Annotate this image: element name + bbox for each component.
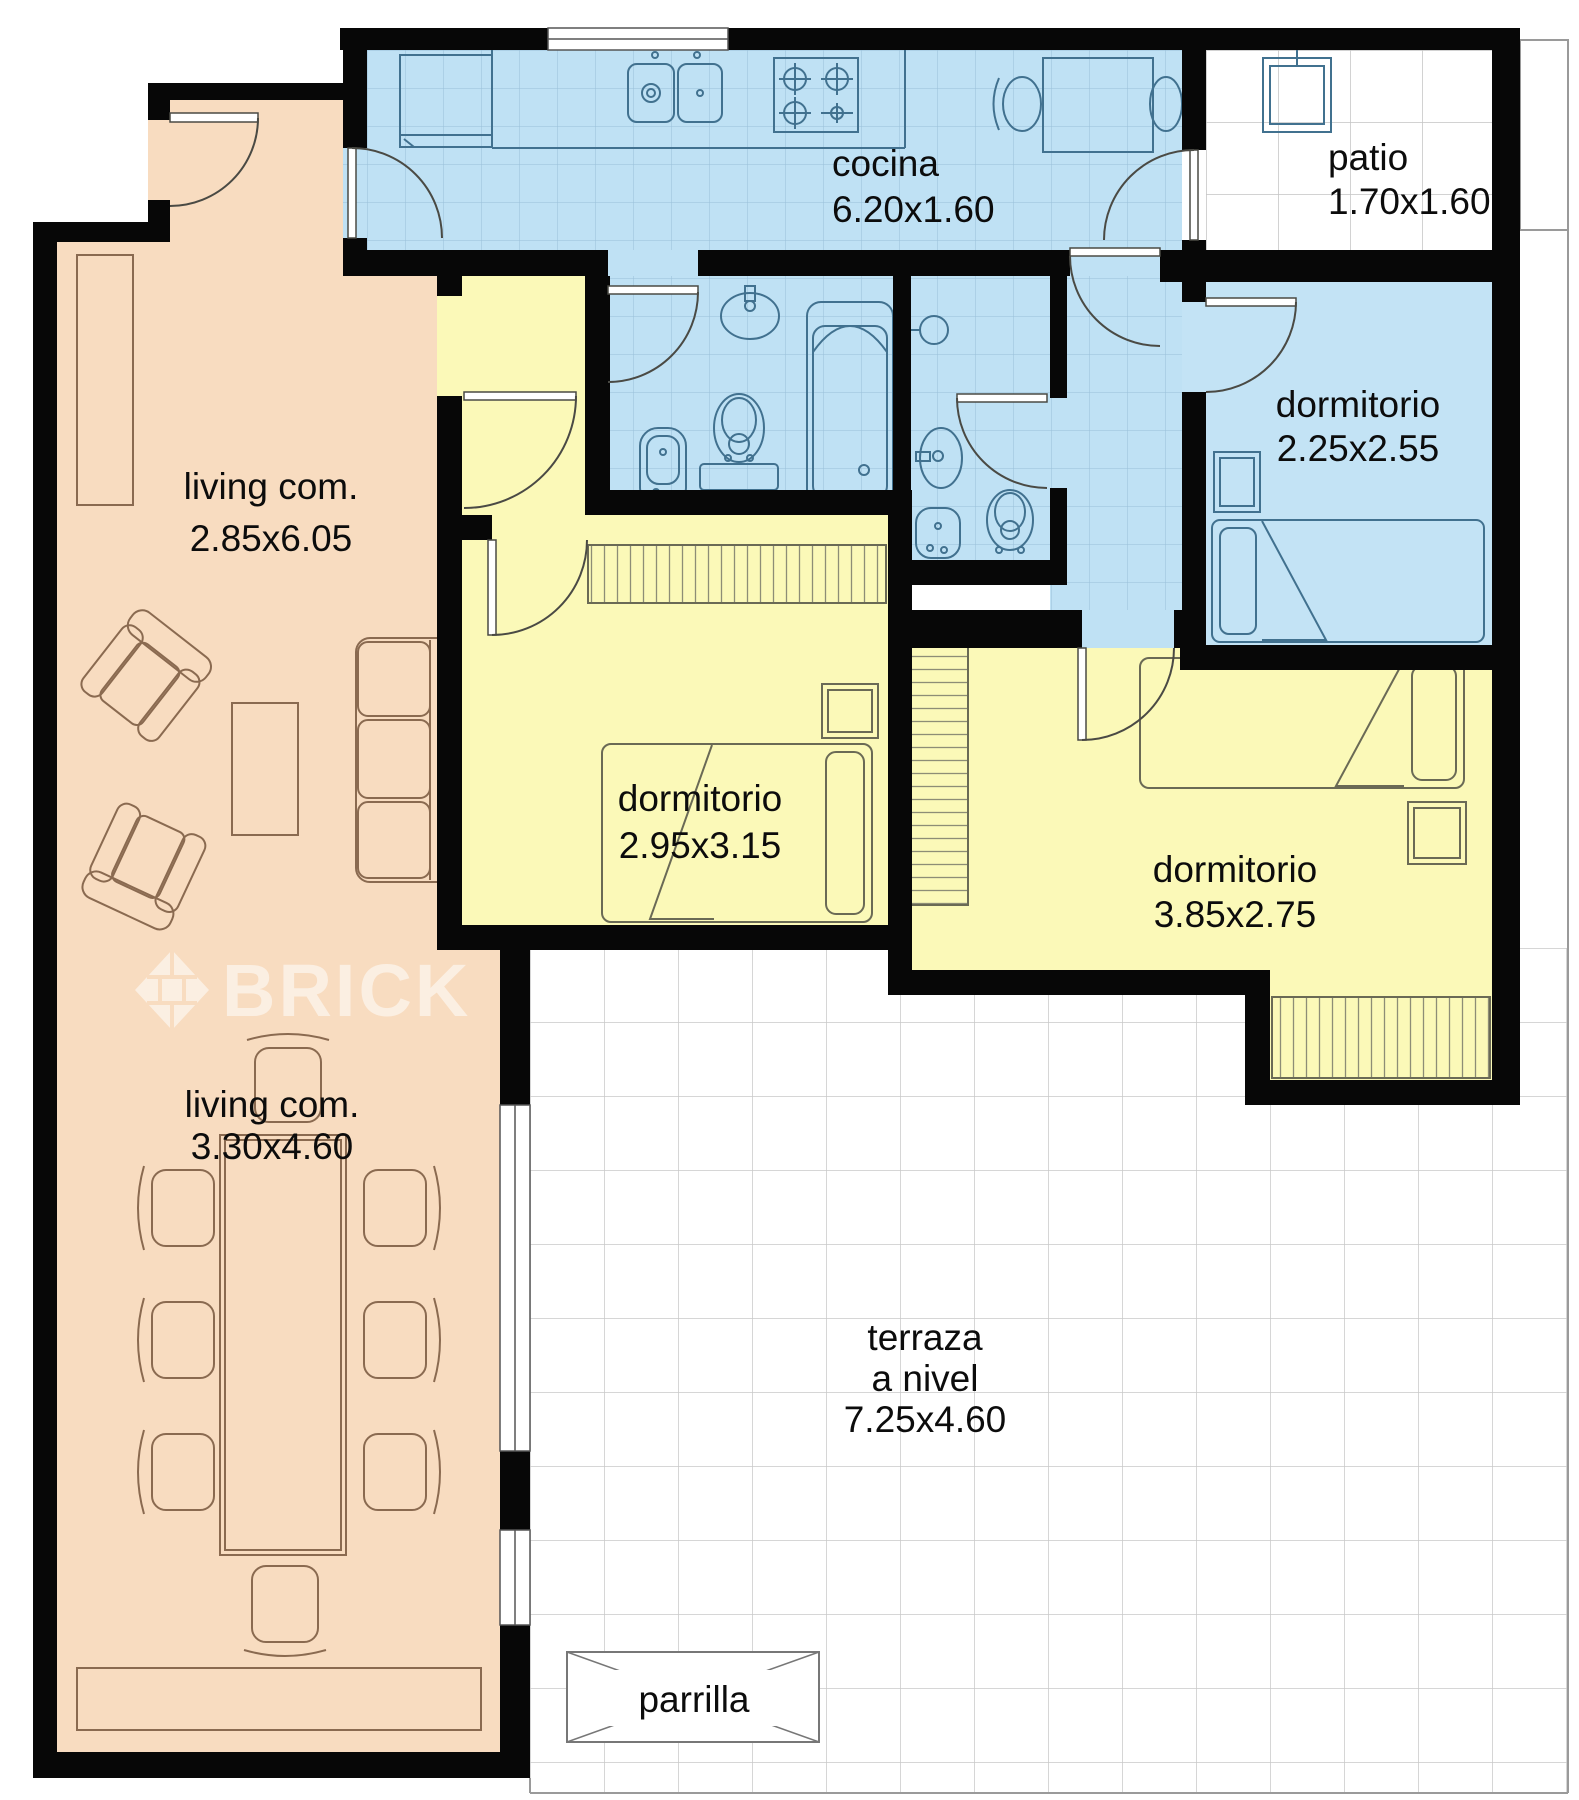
terrace-window	[500, 1105, 530, 1451]
label-living-lower-dims: 3.30x4.60	[191, 1126, 354, 1167]
room-living	[57, 100, 500, 1752]
air-shaft	[1520, 40, 1568, 230]
label-terraza-dims: 7.25x4.60	[844, 1399, 1007, 1440]
label-dorm-small: dormitorio	[1276, 384, 1441, 425]
wardrobe	[910, 612, 968, 905]
label-living-lower: living com.	[185, 1084, 360, 1125]
label-dorm-right: dormitorio	[1153, 849, 1318, 890]
label-terraza-1: terraza	[867, 1317, 983, 1358]
wardrobe	[588, 545, 886, 603]
label-cocina-dims: 6.20x1.60	[832, 189, 995, 230]
label-dorm-center-dims: 2.95x3.15	[619, 825, 782, 866]
room-cocina	[343, 50, 1182, 276]
label-dorm-center: dormitorio	[618, 778, 783, 819]
parrilla-box: parrilla	[567, 1652, 819, 1742]
label-living-upper: living com.	[184, 466, 359, 507]
corridor	[1050, 276, 1182, 648]
terrace-window	[500, 1530, 530, 1625]
label-cocina: cocina	[832, 143, 939, 184]
wardrobe	[1272, 997, 1490, 1078]
parrilla-label: parrilla	[638, 1679, 749, 1720]
floor-plan: parrilla BRICK cocina 6.20x1.60 patio 1.…	[0, 0, 1579, 1800]
label-dorm-right-dims: 3.85x2.75	[1154, 894, 1317, 935]
watermark-text: BRICK	[222, 949, 471, 1032]
label-patio: patio	[1328, 137, 1408, 178]
bathroom-second	[907, 276, 1050, 560]
label-living-upper-dims: 2.85x6.05	[190, 518, 353, 559]
floor-plan-canvas: parrilla BRICK cocina 6.20x1.60 patio 1.…	[0, 0, 1579, 1800]
kitchen-window	[548, 28, 728, 50]
label-terraza-2: a nivel	[872, 1358, 979, 1399]
label-patio-dims: 1.70x1.60	[1328, 181, 1491, 222]
label-dorm-small-dims: 2.25x2.55	[1277, 428, 1440, 469]
